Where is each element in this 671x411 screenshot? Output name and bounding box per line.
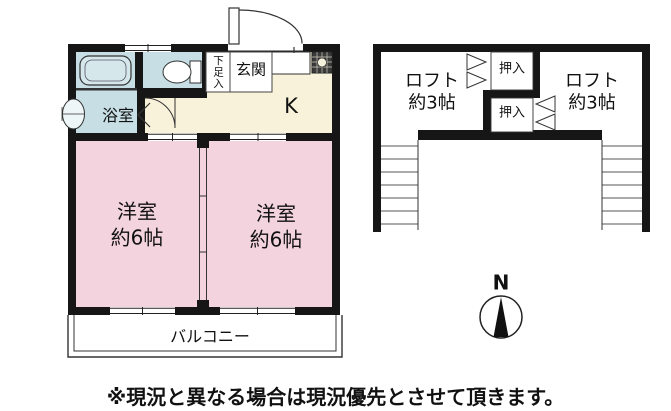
- closet-bottom-label: 押入: [499, 107, 525, 122]
- balcony-label: バルコニー: [170, 328, 250, 346]
- entrance-door-arc-icon: [229, 8, 302, 44]
- stove-icon: [312, 52, 332, 73]
- shoe-box-label: 下足入: [212, 55, 224, 90]
- toilet-icon: [163, 61, 201, 83]
- ladder-icon: [381, 140, 642, 230]
- bathroom-label: 浴室: [102, 107, 134, 125]
- washbasin-icon: [62, 99, 85, 129]
- loft-left-size: 約3帖: [408, 94, 455, 115]
- floorplan-canvas: 浴室 玄関 下足入 K 洋室 約6帖 洋室 約6帖 バルコニー ロフト 約3帖 …: [0, 0, 671, 411]
- disclaimer-text: ※現況と異なる場合は現況優先とさせて頂きます。: [0, 381, 671, 410]
- compass-icon: [480, 296, 522, 338]
- room-right-name: 洋室: [256, 203, 296, 226]
- bathtub-icon: [80, 56, 131, 85]
- room-left-size: 約6帖: [111, 227, 164, 250]
- loft-right-size: 約3帖: [568, 94, 615, 115]
- room-right-size: 約6帖: [250, 229, 303, 252]
- loft-right-name: ロフト: [565, 72, 619, 93]
- closet-top-label: 押入: [499, 63, 525, 78]
- floorplan-drawing: [0, 0, 671, 411]
- compass-north-label: N: [493, 272, 510, 295]
- loft-left-name: ロフト: [405, 72, 459, 93]
- kitchen-label: K: [284, 94, 298, 118]
- entrance-label: 玄関: [236, 61, 266, 78]
- room-left-name: 洋室: [117, 201, 157, 224]
